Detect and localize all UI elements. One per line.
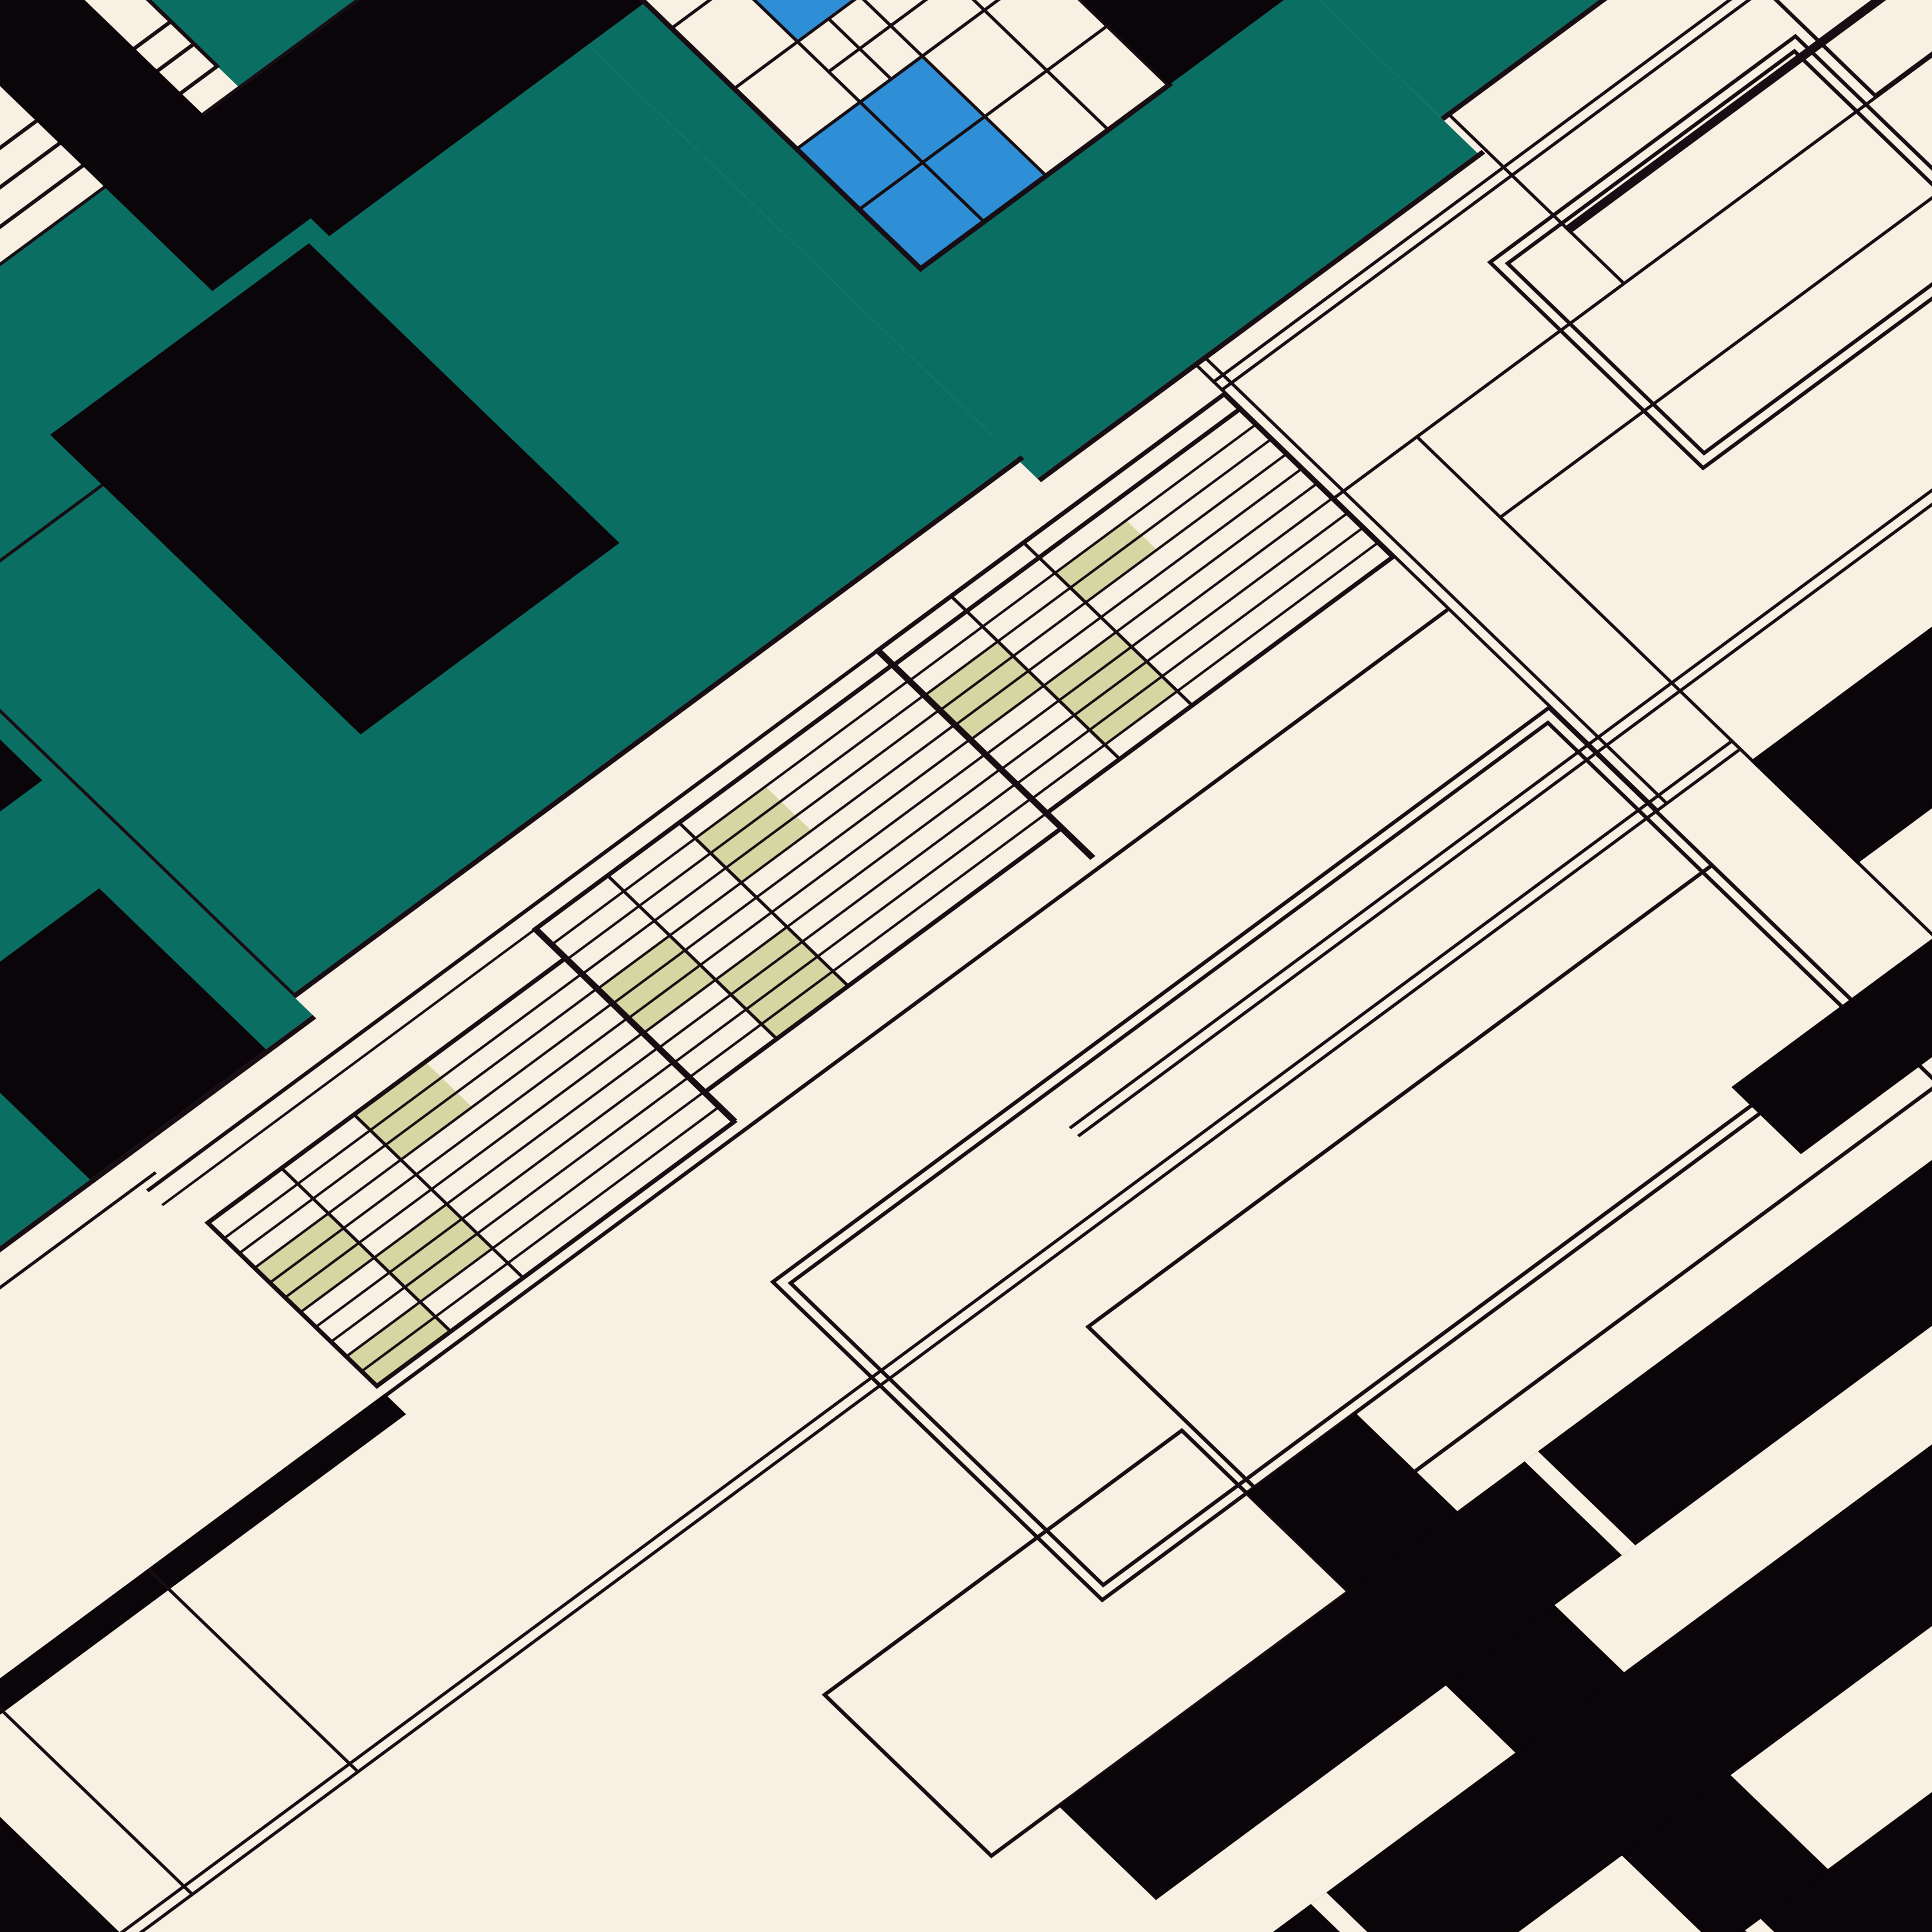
oblique-grid [0,0,1932,1932]
artwork-canvas [0,0,1932,1932]
abstract-composition [0,0,1932,1932]
